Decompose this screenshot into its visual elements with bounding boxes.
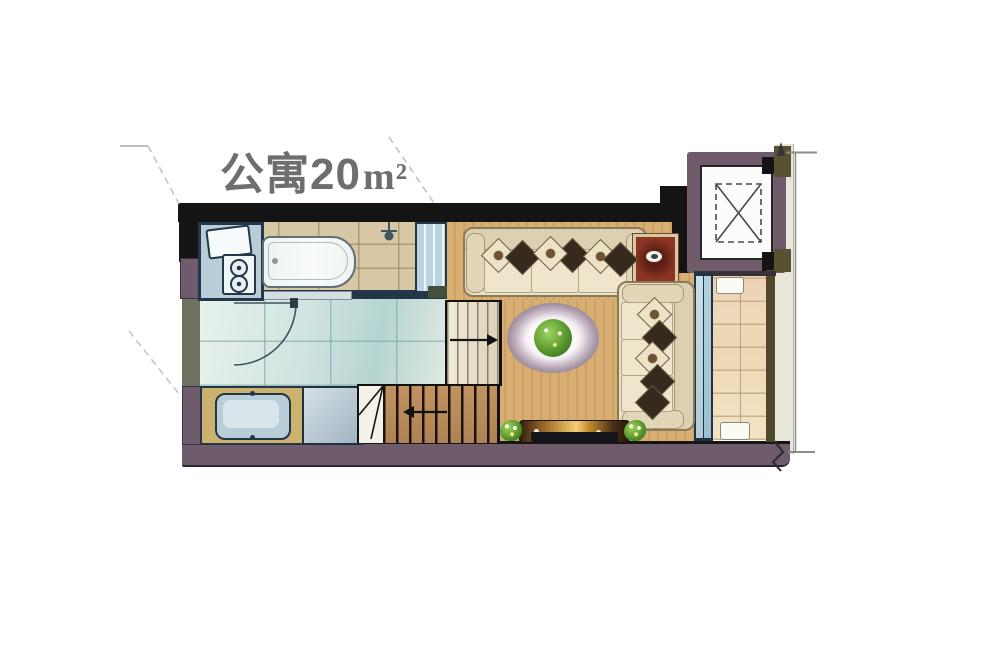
- shower-head: [385, 232, 394, 241]
- leader-line-lower-left: [129, 331, 179, 394]
- dimension-break-symbol: [773, 442, 783, 471]
- entry-door-swing: [234, 298, 298, 365]
- door-arc: [234, 303, 296, 365]
- leader-line-left: [148, 146, 179, 204]
- dimension-arrow-up: [777, 142, 785, 156]
- plan-linework: [0, 0, 1000, 666]
- stairs-down-arrow-head: [403, 406, 414, 418]
- elevator-symbol-x: [716, 184, 761, 242]
- floor-plan-canvas: 公寓20m²: [0, 0, 1000, 666]
- page-title: 公寓20m²: [220, 138, 408, 202]
- elevator-icon: [716, 184, 761, 242]
- stairs-direction-arrows: [403, 334, 498, 418]
- shower-icon: [381, 222, 397, 241]
- title-text: 公寓20: [220, 150, 361, 199]
- stairs-up-arrow-head: [487, 334, 498, 346]
- dimension-line-right: [773, 142, 817, 471]
- title-unit: m²: [363, 156, 408, 198]
- door-latch: [290, 298, 298, 308]
- winder-lines: [359, 386, 383, 439]
